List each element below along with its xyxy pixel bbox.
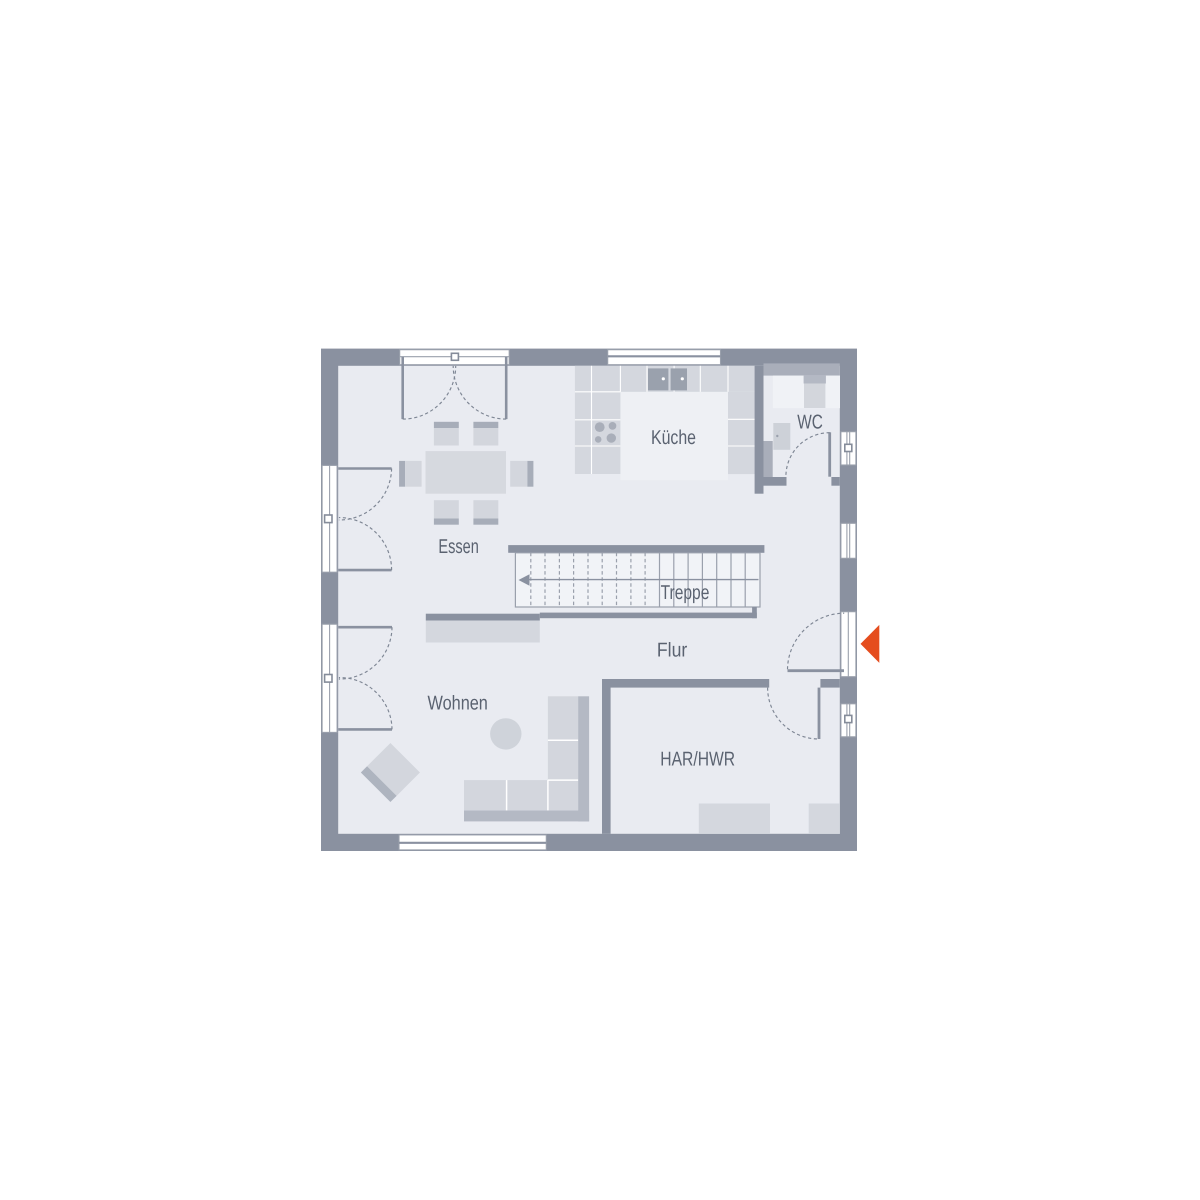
svg-text:Küche: Küche: [651, 427, 696, 449]
svg-text:WC: WC: [797, 411, 823, 433]
svg-text:Wohnen: Wohnen: [428, 693, 488, 715]
svg-text:Essen: Essen: [438, 536, 478, 558]
svg-text:Treppe: Treppe: [661, 582, 710, 604]
svg-text:HAR/HWR: HAR/HWR: [660, 749, 735, 771]
svg-text:Flur: Flur: [657, 640, 688, 662]
